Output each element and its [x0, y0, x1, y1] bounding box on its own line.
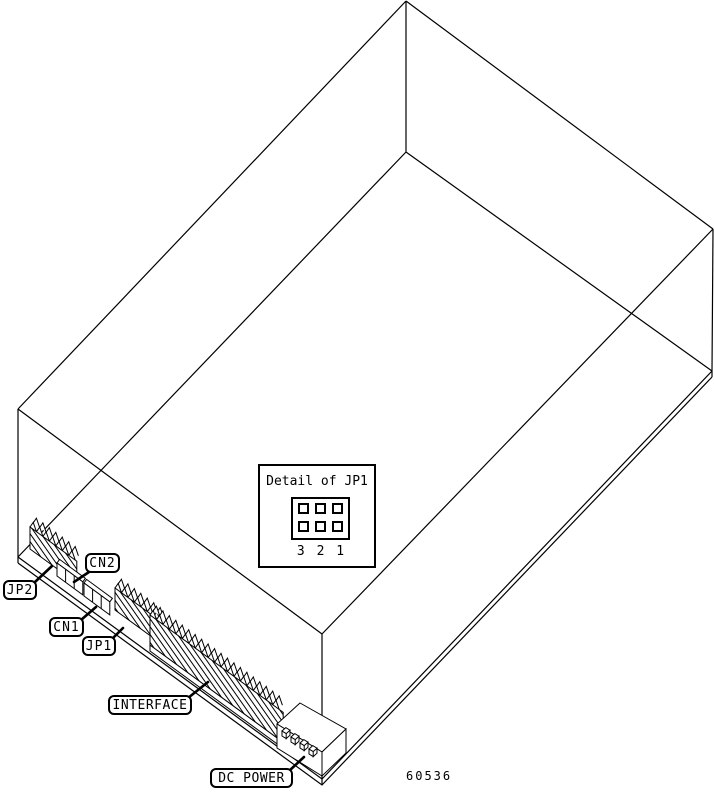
label-dc-power: DC POWER — [210, 768, 293, 788]
jp1-pin-square — [298, 521, 309, 532]
jp1-pin-square — [315, 521, 326, 532]
detail-inset: Detail of JP1 3 2 1 — [258, 464, 376, 568]
jp1-pin-grid — [291, 497, 350, 540]
detail-inset-title: Detail of JP1 — [260, 474, 374, 489]
label-cn2: CN2 — [85, 553, 120, 573]
label-jp2: JP2 — [3, 580, 37, 600]
jp1-pin-square — [298, 503, 309, 514]
interface-connector — [150, 606, 283, 748]
label-jp1: JP1 — [82, 636, 116, 656]
jp1-pin-square — [332, 521, 343, 532]
pin-number-2: 2 — [317, 544, 325, 559]
label-cn1: CN1 — [49, 617, 84, 637]
jp1-pin-square — [332, 503, 343, 514]
base-rim — [18, 371, 712, 785]
pin-number-3: 3 — [297, 544, 305, 559]
jp1-pin-square — [315, 503, 326, 514]
diagram-canvas: JP2 CN2 CN1 JP1 INTERFACE DC POWER Detai… — [0, 0, 714, 793]
chassis-outline — [18, 1, 713, 785]
leader-lines — [35, 566, 304, 771]
jp1-pin-numbers: 3 2 1 — [291, 544, 350, 559]
pin-number-1: 1 — [336, 544, 344, 559]
label-interface: INTERFACE — [108, 695, 192, 715]
drive-line-art — [0, 0, 714, 793]
figure-number: 60536 — [406, 769, 452, 783]
cn1-connector — [84, 579, 112, 615]
